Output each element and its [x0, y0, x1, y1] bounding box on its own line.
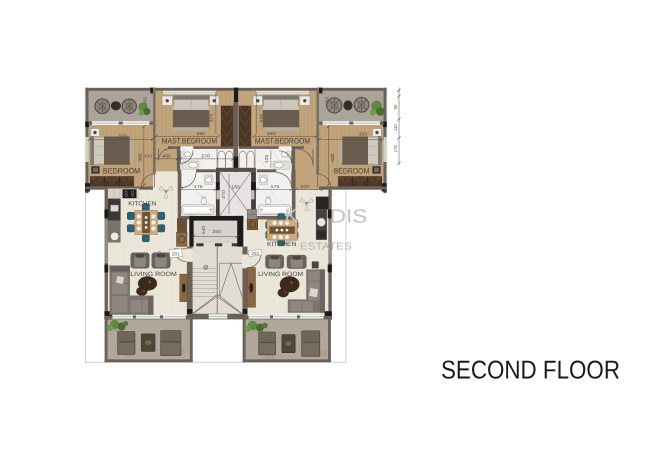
svg-text:140: 140: [201, 225, 206, 234]
svg-text:202: 202: [251, 251, 259, 256]
svg-text:400: 400: [162, 154, 171, 159]
svg-text:201: 201: [172, 252, 180, 257]
svg-text:320: 320: [359, 132, 368, 137]
svg-text:90: 90: [393, 104, 398, 109]
svg-text:270: 270: [201, 154, 210, 159]
svg-text:BEDROOM: BEDROOM: [103, 167, 140, 176]
svg-text:DIS: DIS: [330, 207, 368, 228]
svg-text:385: 385: [137, 152, 142, 161]
svg-text:125: 125: [264, 154, 269, 163]
svg-text:LIVING ROOM: LIVING ROOM: [130, 271, 177, 278]
svg-text:360: 360: [196, 131, 205, 136]
svg-text:175: 175: [271, 184, 280, 189]
svg-text:170: 170: [393, 145, 398, 153]
svg-text:255: 255: [325, 97, 330, 106]
svg-text:BEDROOM: BEDROOM: [334, 167, 370, 176]
svg-text:255: 255: [142, 96, 147, 105]
svg-text:250: 250: [212, 229, 221, 234]
svg-text:385: 385: [330, 153, 335, 162]
svg-text:K: K: [285, 206, 298, 227]
svg-text:100: 100: [300, 184, 309, 189]
svg-text:LIVING ROOM: LIVING ROOM: [258, 271, 303, 278]
svg-text:MAST.BEDROOM: MAST.BEDROOM: [162, 137, 217, 146]
svg-text:270: 270: [221, 189, 226, 198]
svg-text:325: 325: [259, 114, 264, 123]
svg-text:20: 20: [158, 251, 162, 255]
svg-text:SECOND FLOOR: SECOND FLOOR: [441, 357, 620, 385]
svg-text:MAST.BEDROOM: MAST.BEDROOM: [255, 137, 310, 146]
svg-text:360: 360: [267, 131, 276, 136]
svg-text:325: 325: [208, 113, 213, 122]
svg-text:165: 165: [231, 184, 240, 189]
svg-text:KITCHEN: KITCHEN: [128, 201, 156, 208]
svg-text:100: 100: [144, 154, 153, 159]
svg-text:110: 110: [393, 124, 398, 131]
svg-text:320: 320: [118, 133, 127, 138]
svg-text:175: 175: [194, 184, 203, 189]
svg-text:ESTATES: ESTATES: [300, 242, 352, 253]
svg-text:KITCHEN: KITCHEN: [267, 241, 296, 248]
